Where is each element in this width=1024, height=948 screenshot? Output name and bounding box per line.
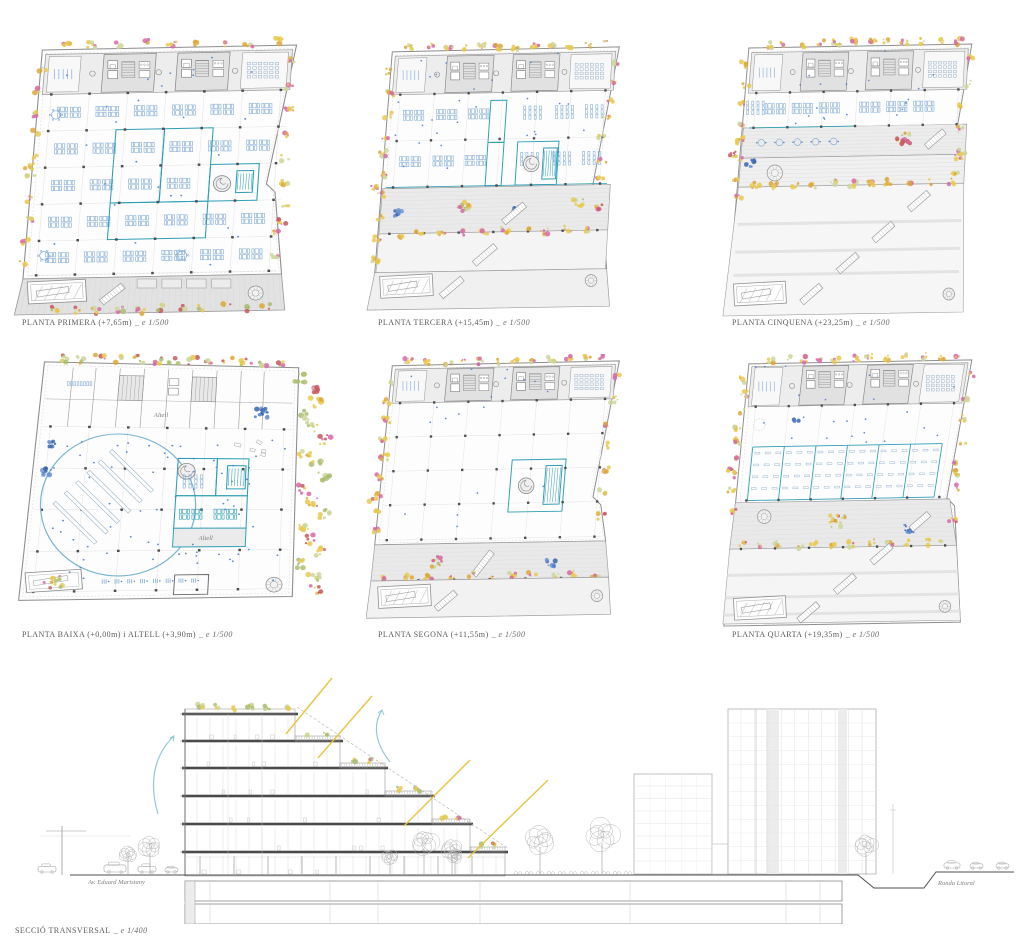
plan-title: PLANTA TERCERA (+15,45m) bbox=[378, 318, 493, 327]
plan-title: PLANTA QUARTA (+19,35m) bbox=[732, 630, 843, 639]
section-scale: _ e 1/400 bbox=[114, 926, 148, 935]
drawing-sheet: PLANTA PRIMERA (+7,65m)_ e 1/500 PLANTA … bbox=[0, 0, 1024, 948]
floor-plan-planta-tercera: PLANTA TERCERA (+15,45m)_ e 1/500 bbox=[366, 40, 668, 332]
planta-baixa-drawing: AltellAltell bbox=[10, 352, 344, 630]
plan-title: PLANTA PRIMERA (+7,65m) bbox=[22, 318, 132, 327]
plan-caption-planta-baixa: PLANTA BAIXA (+0,00m) i ALTELL (+3,90m)_… bbox=[10, 630, 344, 639]
planta-cinquena-drawing bbox=[720, 36, 1018, 318]
floor-plan-planta-cinquena: PLANTA CINQUENA (+23,25m)_ e 1/500 bbox=[720, 36, 1018, 332]
plan-title: PLANTA CINQUENA (+23,25m) bbox=[732, 318, 853, 327]
planta-segona-drawing bbox=[366, 354, 668, 630]
plan-caption-planta-tercera: PLANTA TERCERA (+15,45m)_ e 1/500 bbox=[366, 318, 668, 327]
plan-scale: _ e 1/500 bbox=[846, 630, 880, 639]
plan-scale: _ e 1/500 bbox=[496, 318, 530, 327]
section-title: SECCIÓ TRANSVERSAL bbox=[15, 926, 111, 935]
altell-label: Altell bbox=[153, 412, 169, 419]
plan-title: PLANTA BAIXA (+0,00m) i ALTELL (+3,90m) bbox=[22, 630, 196, 639]
plan-caption-planta-quarta: PLANTA QUARTA (+19,35m)_ e 1/500 bbox=[720, 630, 1018, 639]
section-caption: SECCIÓ TRANSVERSAL_ e 1/400 bbox=[0, 926, 1024, 935]
floor-plan-planta-primera: PLANTA PRIMERA (+7,65m)_ e 1/500 bbox=[10, 36, 344, 332]
plan-scale: _ e 1/500 bbox=[135, 318, 169, 327]
altell-label: Altell bbox=[197, 535, 213, 542]
plan-caption-planta-cinquena: PLANTA CINQUENA (+23,25m)_ e 1/500 bbox=[720, 318, 1018, 327]
planta-quarta-drawing bbox=[720, 352, 1018, 630]
plan-caption-planta-segona: PLANTA SEGONA (+11,55m)_ e 1/500 bbox=[366, 630, 668, 639]
plan-scale: _ e 1/500 bbox=[492, 630, 526, 639]
floor-plan-planta-baixa: AltellAltell PLANTA BAIXA (+0,00m) i ALT… bbox=[10, 352, 344, 644]
plan-scale: _ e 1/500 bbox=[199, 630, 233, 639]
plan-title: PLANTA SEGONA (+11,55m) bbox=[378, 630, 489, 639]
cross-section: Av. Eduard MaristanyRonda Litoral SECCIÓ… bbox=[0, 676, 1024, 946]
street-label-right: Ronda Litoral bbox=[937, 880, 975, 887]
plan-scale: _ e 1/500 bbox=[856, 318, 890, 327]
planta-primera-drawing bbox=[10, 36, 344, 318]
street-label-left: Av. Eduard Maristany bbox=[87, 879, 145, 886]
planta-tercera-drawing bbox=[366, 40, 668, 318]
floor-plan-planta-quarta: PLANTA QUARTA (+19,35m)_ e 1/500 bbox=[720, 352, 1018, 644]
floor-plan-planta-segona: PLANTA SEGONA (+11,55m)_ e 1/500 bbox=[366, 354, 668, 644]
cross-section-drawing: Av. Eduard MaristanyRonda Litoral bbox=[0, 676, 1024, 924]
plan-caption-planta-primera: PLANTA PRIMERA (+7,65m)_ e 1/500 bbox=[10, 318, 344, 327]
